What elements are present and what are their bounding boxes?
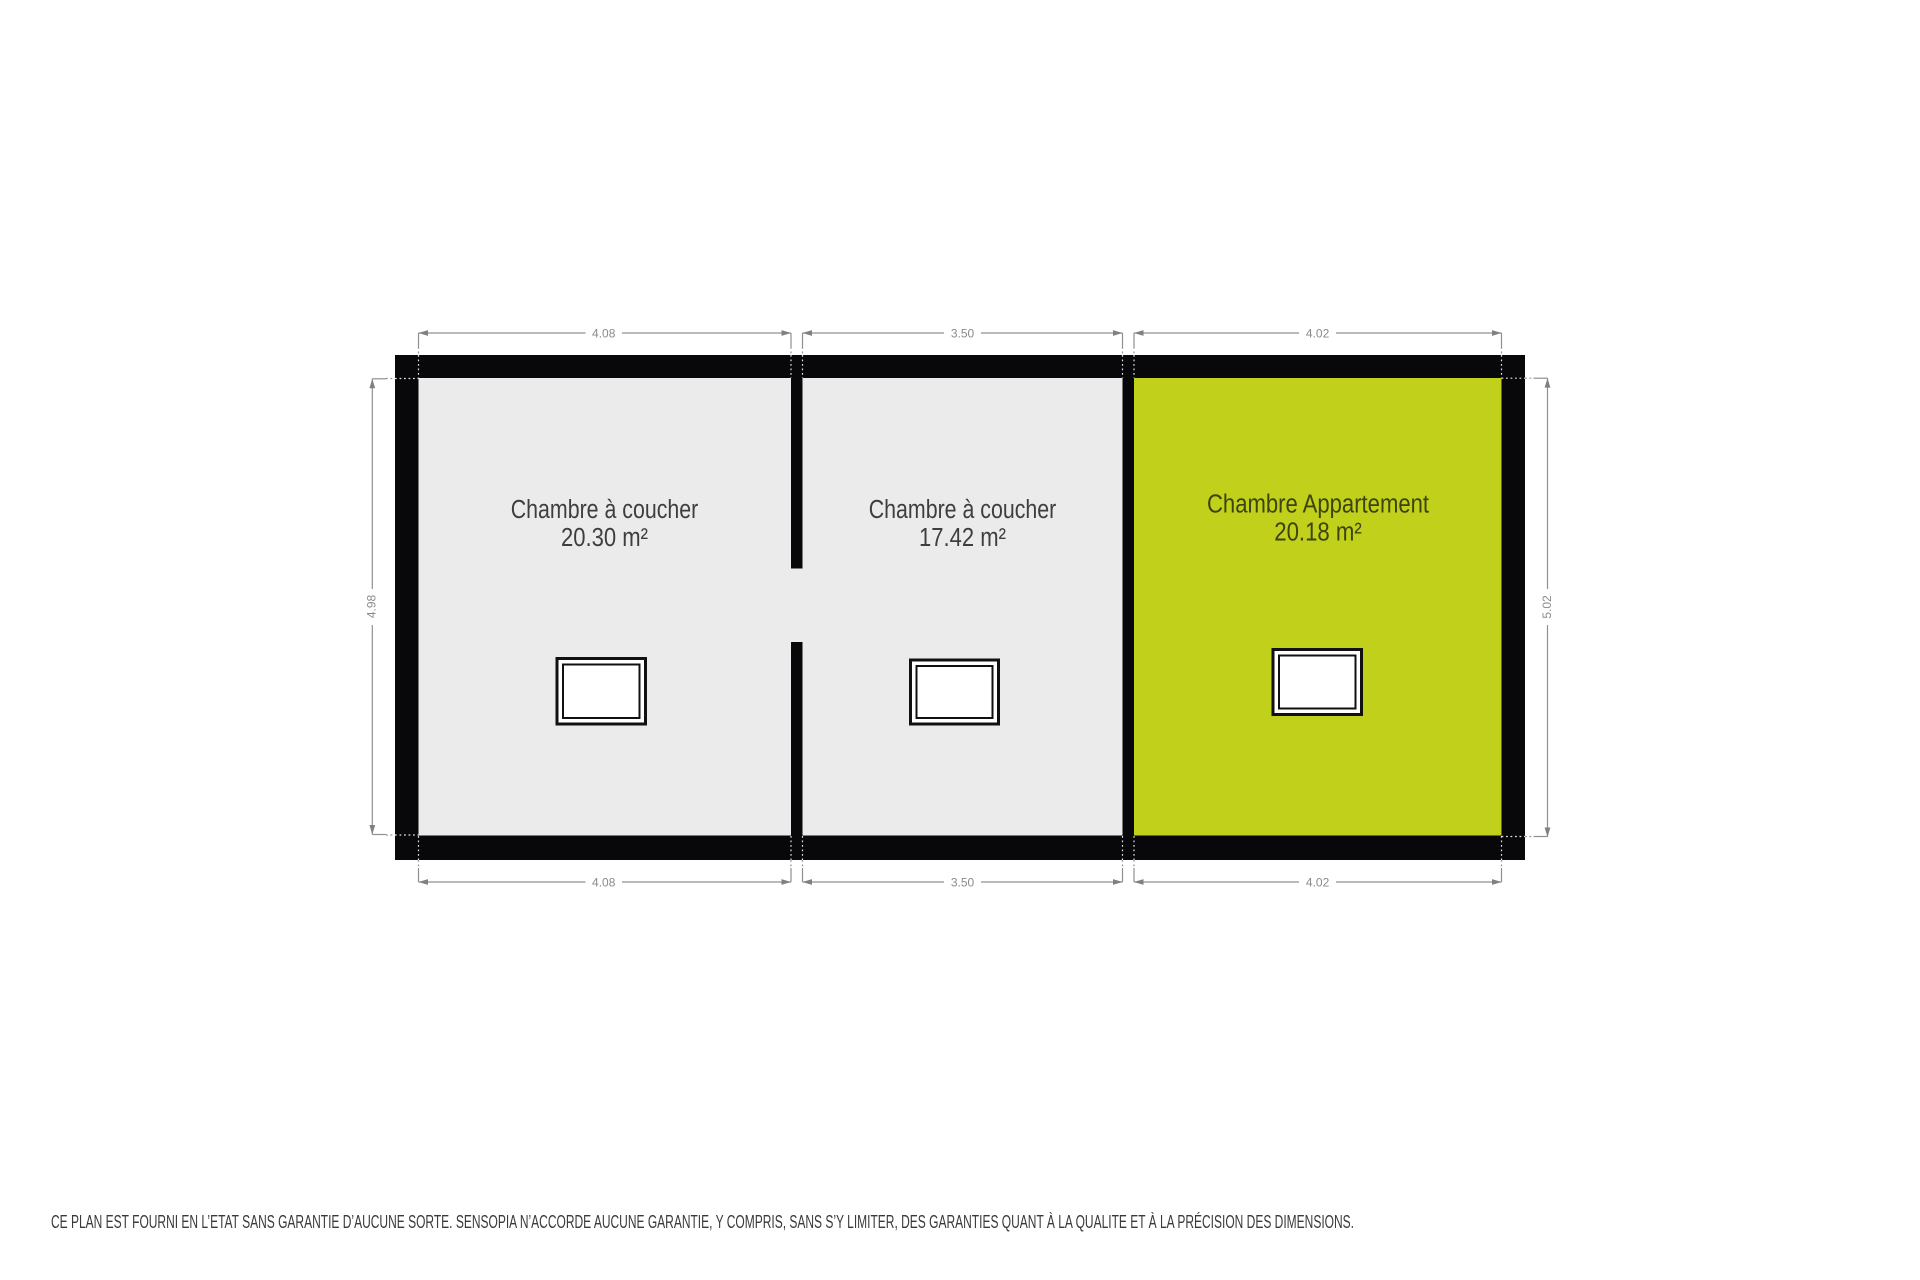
svg-text:20.18 m²: 20.18 m² — [1274, 519, 1362, 547]
svg-text:Chambre Appartement: Chambre Appartement — [1207, 491, 1429, 519]
svg-text:17.42 m²: 17.42 m² — [919, 524, 1006, 552]
svg-text:20.30 m²: 20.30 m² — [561, 524, 648, 552]
svg-text:Chambre à coucher: Chambre à coucher — [869, 496, 1057, 524]
svg-text:4.02: 4.02 — [1306, 326, 1330, 340]
svg-text:Chambre à coucher: Chambre à coucher — [511, 496, 699, 524]
svg-text:4.08: 4.08 — [592, 326, 616, 340]
svg-text:CE PLAN EST FOURNI EN L’ETAT S: CE PLAN EST FOURNI EN L’ETAT SANS GARANT… — [51, 1212, 1354, 1232]
svg-text:5.02: 5.02 — [1540, 595, 1554, 619]
svg-text:4.08: 4.08 — [592, 875, 616, 889]
svg-text:4.98: 4.98 — [365, 594, 379, 618]
svg-text:4.02: 4.02 — [1306, 875, 1330, 889]
svg-text:3.50: 3.50 — [951, 326, 975, 340]
svg-text:3.50: 3.50 — [951, 875, 975, 889]
